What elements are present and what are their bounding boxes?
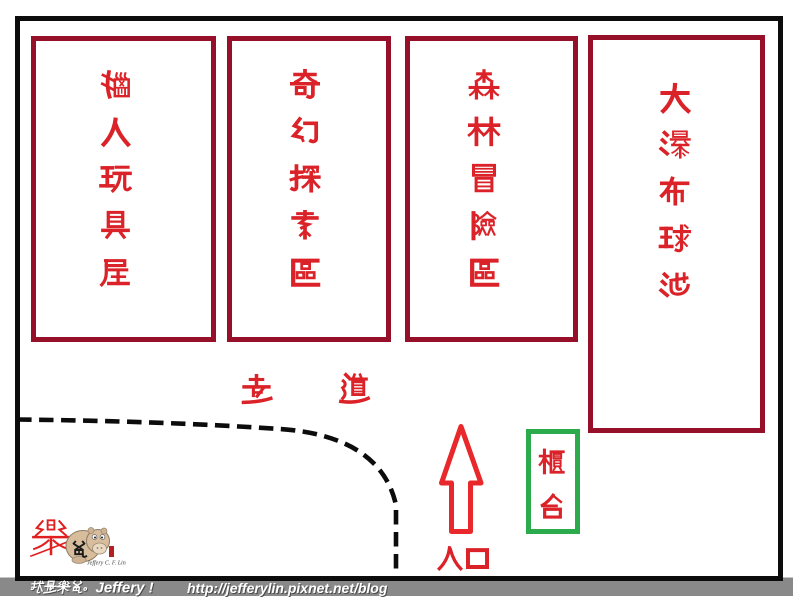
svg-text:Jeffery !: Jeffery ! (96, 580, 154, 597)
svg-text:http://jefferylin.pixnet.net/b: http://jefferylin.pixnet.net/blog (187, 580, 388, 596)
svg-text:Jeffery C. F. Lin: Jeffery C. F. Lin (87, 560, 126, 567)
